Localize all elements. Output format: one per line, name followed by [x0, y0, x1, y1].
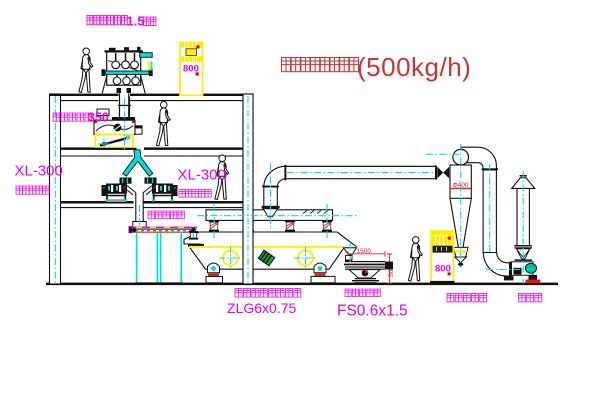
- svg-text:FS0.6x1.5: FS0.6x1.5: [337, 303, 408, 320]
- svg-text:1.5: 1.5: [127, 14, 145, 29]
- svg-text:(500kg/h): (500kg/h): [357, 52, 471, 82]
- svg-text:XL-300: XL-300: [15, 163, 63, 180]
- svg-text:1500: 1500: [357, 248, 372, 255]
- svg-text:350: 350: [88, 111, 109, 125]
- svg-text:XL-300: XL-300: [178, 167, 226, 184]
- svg-text:ZLG6x0.75: ZLG6x0.75: [227, 300, 296, 316]
